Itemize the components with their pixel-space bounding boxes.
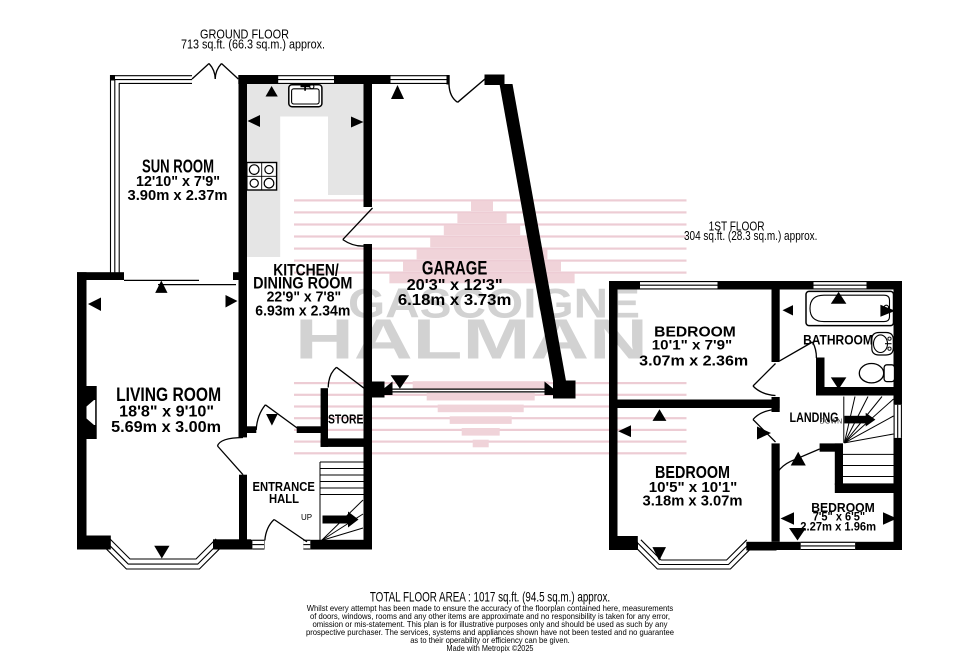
svg-text:6.18m x 3.73m: 6.18m x 3.73m [398,292,512,309]
svg-text:Made with Metropix ©2025: Made with Metropix ©2025 [447,643,534,653]
svg-text:BATHROOM: BATHROOM [803,332,873,347]
svg-text:6.93m x 2.34m: 6.93m x 2.34m [255,303,350,320]
svg-text:UP: UP [301,513,312,522]
svg-text:304 sq.ft. (28.3 sq.m.) approx: 304 sq.ft. (28.3 sq.m.) approx. [684,228,818,243]
svg-text:3.18m x 3.07m: 3.18m x 3.07m [643,493,743,510]
svg-text:3.07m x 2.36m: 3.07m x 2.36m [639,352,748,369]
svg-text:HALL: HALL [269,491,299,506]
svg-text:2.27m x 1.96m: 2.27m x 1.96m [800,521,876,533]
svg-text:STORE: STORE [328,413,364,427]
svg-text:3.90m x 2.37m: 3.90m x 2.37m [128,187,228,204]
svg-text:5.69m x 3.00m: 5.69m x 3.00m [111,419,221,436]
svg-text:713 sq.ft. (66.3 sq.m.) approx: 713 sq.ft. (66.3 sq.m.) approx. [181,37,325,52]
svg-text:10'1" x 7'9": 10'1" x 7'9" [652,337,733,352]
svg-text:DOWN: DOWN [820,417,842,426]
